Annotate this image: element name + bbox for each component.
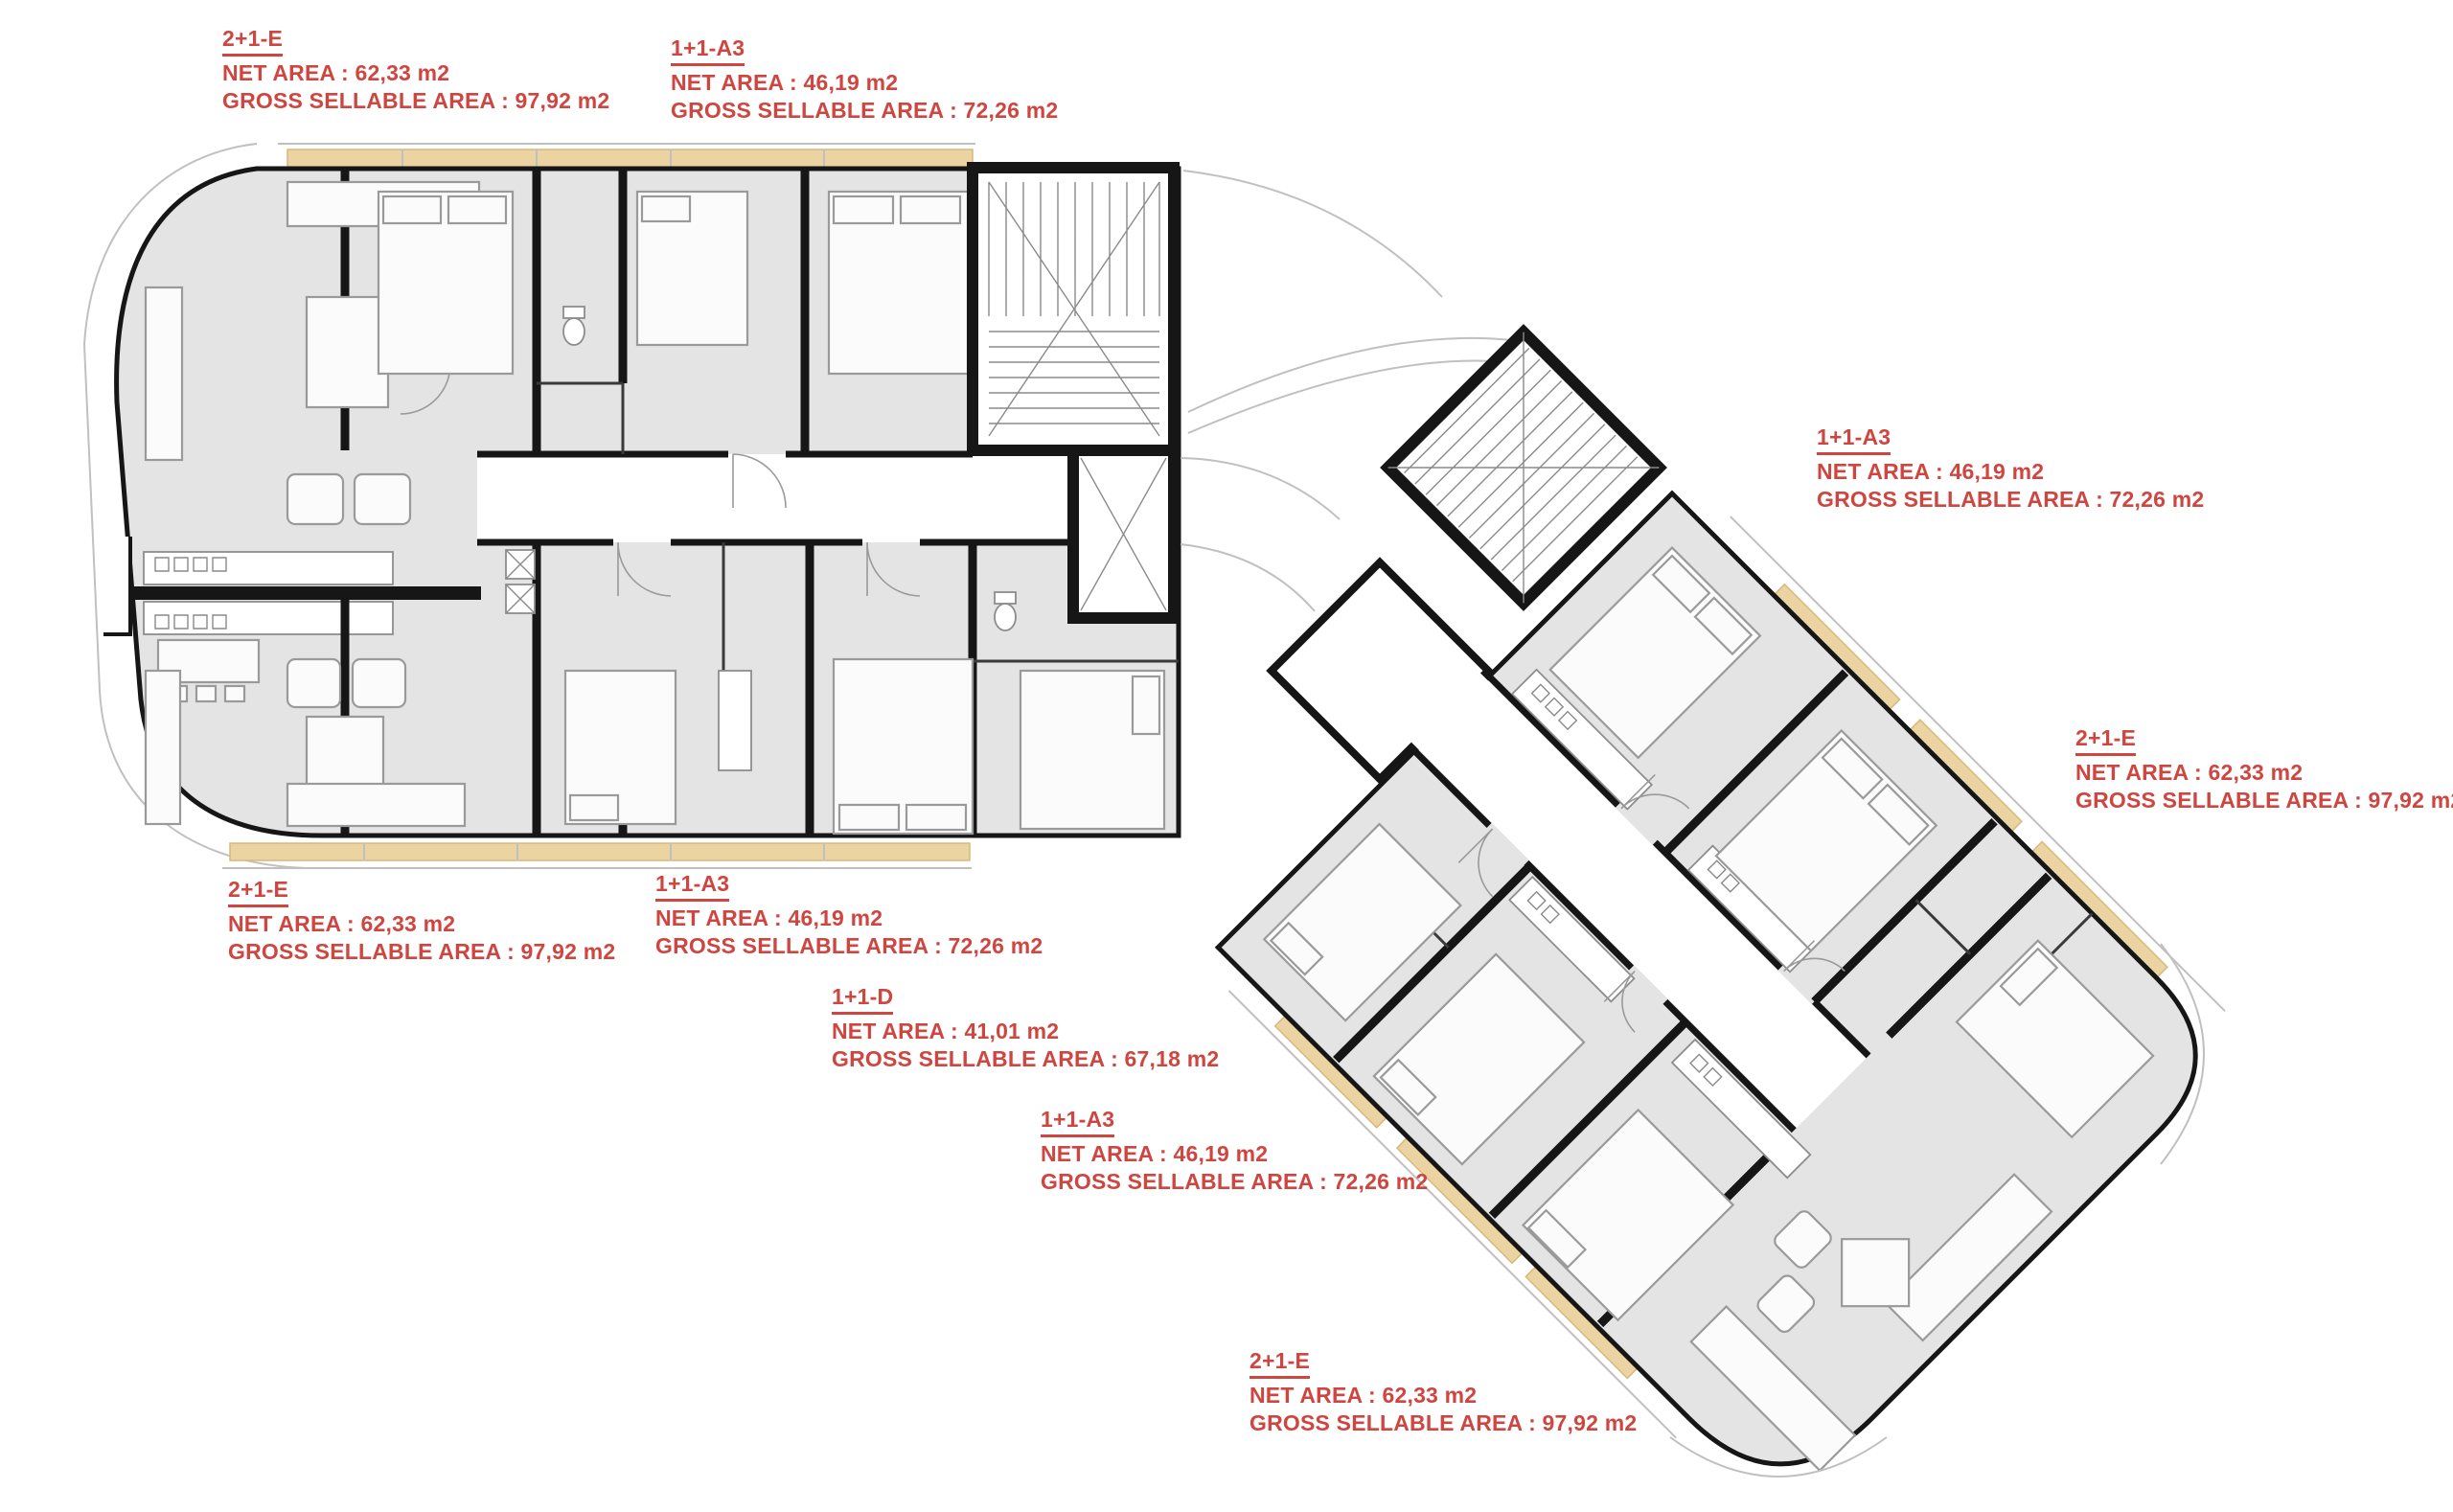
furniture-bedrooms-bottom <box>565 659 1164 834</box>
balcony-strip-top <box>287 149 973 169</box>
unit-title: 1+1-A3 <box>671 34 745 66</box>
unit-gross-area: GROSS SELLABLE AREA : 97,92 m2 <box>1249 1409 1637 1437</box>
unit-label-top-left: 2+1-E NET AREA : 62,33 m2 GROSS SELLABLE… <box>222 25 609 115</box>
unit-label-left-bottom: 2+1-E NET AREA : 62,33 m2 GROSS SELLABLE… <box>228 876 615 966</box>
unit-gross-area: GROSS SELLABLE AREA : 97,92 m2 <box>222 87 609 115</box>
unit-label-right-upper: 1+1-A3 NET AREA : 46,19 m2 GROSS SELLABL… <box>1817 424 2204 514</box>
unit-label-center-d: 1+1-D NET AREA : 41,01 m2 GROSS SELLABLE… <box>832 983 1219 1073</box>
unit-net-area: NET AREA : 46,19 m2 <box>671 69 1058 97</box>
unit-label-top-center: 1+1-A3 NET AREA : 46,19 m2 GROSS SELLABL… <box>671 34 1058 125</box>
unit-title: 1+1-A3 <box>1041 1106 1114 1137</box>
left-wing-corridor[interactable] <box>477 454 1077 542</box>
spine-wall <box>107 586 481 600</box>
kitchen-counter-upper <box>144 552 393 584</box>
unit-label-right-mid: 2+1-E NET AREA : 62,33 m2 GROSS SELLABLE… <box>2075 724 2453 814</box>
unit-net-area: NET AREA : 62,33 m2 <box>2075 759 2453 787</box>
kitchen-counter-lower <box>144 602 393 634</box>
unit-title: 2+1-E <box>222 25 283 57</box>
unit-label-bottom-right: 2+1-E NET AREA : 62,33 m2 GROSS SELLABLE… <box>1249 1347 1637 1437</box>
unit-title: 2+1-E <box>2075 724 2136 756</box>
unit-net-area: NET AREA : 46,19 m2 <box>1817 458 2204 486</box>
unit-net-area: NET AREA : 46,19 m2 <box>655 905 1043 932</box>
unit-label-bottom-center: 1+1-A3 NET AREA : 46,19 m2 GROSS SELLABL… <box>655 870 1043 960</box>
unit-gross-area: GROSS SELLABLE AREA : 72,26 m2 <box>1041 1168 1428 1196</box>
unit-title: 2+1-E <box>228 876 288 907</box>
unit-label-center-a3: 1+1-A3 NET AREA : 46,19 m2 GROSS SELLABL… <box>1041 1106 1428 1196</box>
unit-gross-area: GROSS SELLABLE AREA : 72,26 m2 <box>1817 486 2204 514</box>
unit-gross-area: GROSS SELLABLE AREA : 97,92 m2 <box>2075 787 2453 814</box>
unit-net-area: NET AREA : 62,33 m2 <box>222 59 609 87</box>
unit-net-area: NET AREA : 41,01 m2 <box>832 1018 1219 1045</box>
unit-net-area: NET AREA : 46,19 m2 <box>1041 1140 1428 1168</box>
unit-net-area: NET AREA : 62,33 m2 <box>1249 1382 1637 1409</box>
unit-title: 2+1-E <box>1249 1347 1310 1379</box>
unit-gross-area: GROSS SELLABLE AREA : 97,92 m2 <box>228 938 615 966</box>
balcony-strip-bottom <box>230 843 970 860</box>
unit-net-area: NET AREA : 62,33 m2 <box>228 910 615 938</box>
unit-gross-area: GROSS SELLABLE AREA : 67,18 m2 <box>832 1045 1219 1073</box>
unit-gross-area: GROSS SELLABLE AREA : 72,26 m2 <box>671 97 1058 125</box>
unit-title: 1+1-A3 <box>655 870 729 902</box>
unit-title: 1+1-D <box>832 983 893 1015</box>
unit-gross-area: GROSS SELLABLE AREA : 72,26 m2 <box>655 932 1043 960</box>
unit-title: 1+1-A3 <box>1817 424 1891 455</box>
left-edge-recess <box>100 537 128 632</box>
floor-plan-page: 2+1-E NET AREA : 62,33 m2 GROSS SELLABLE… <box>0 0 2453 1512</box>
